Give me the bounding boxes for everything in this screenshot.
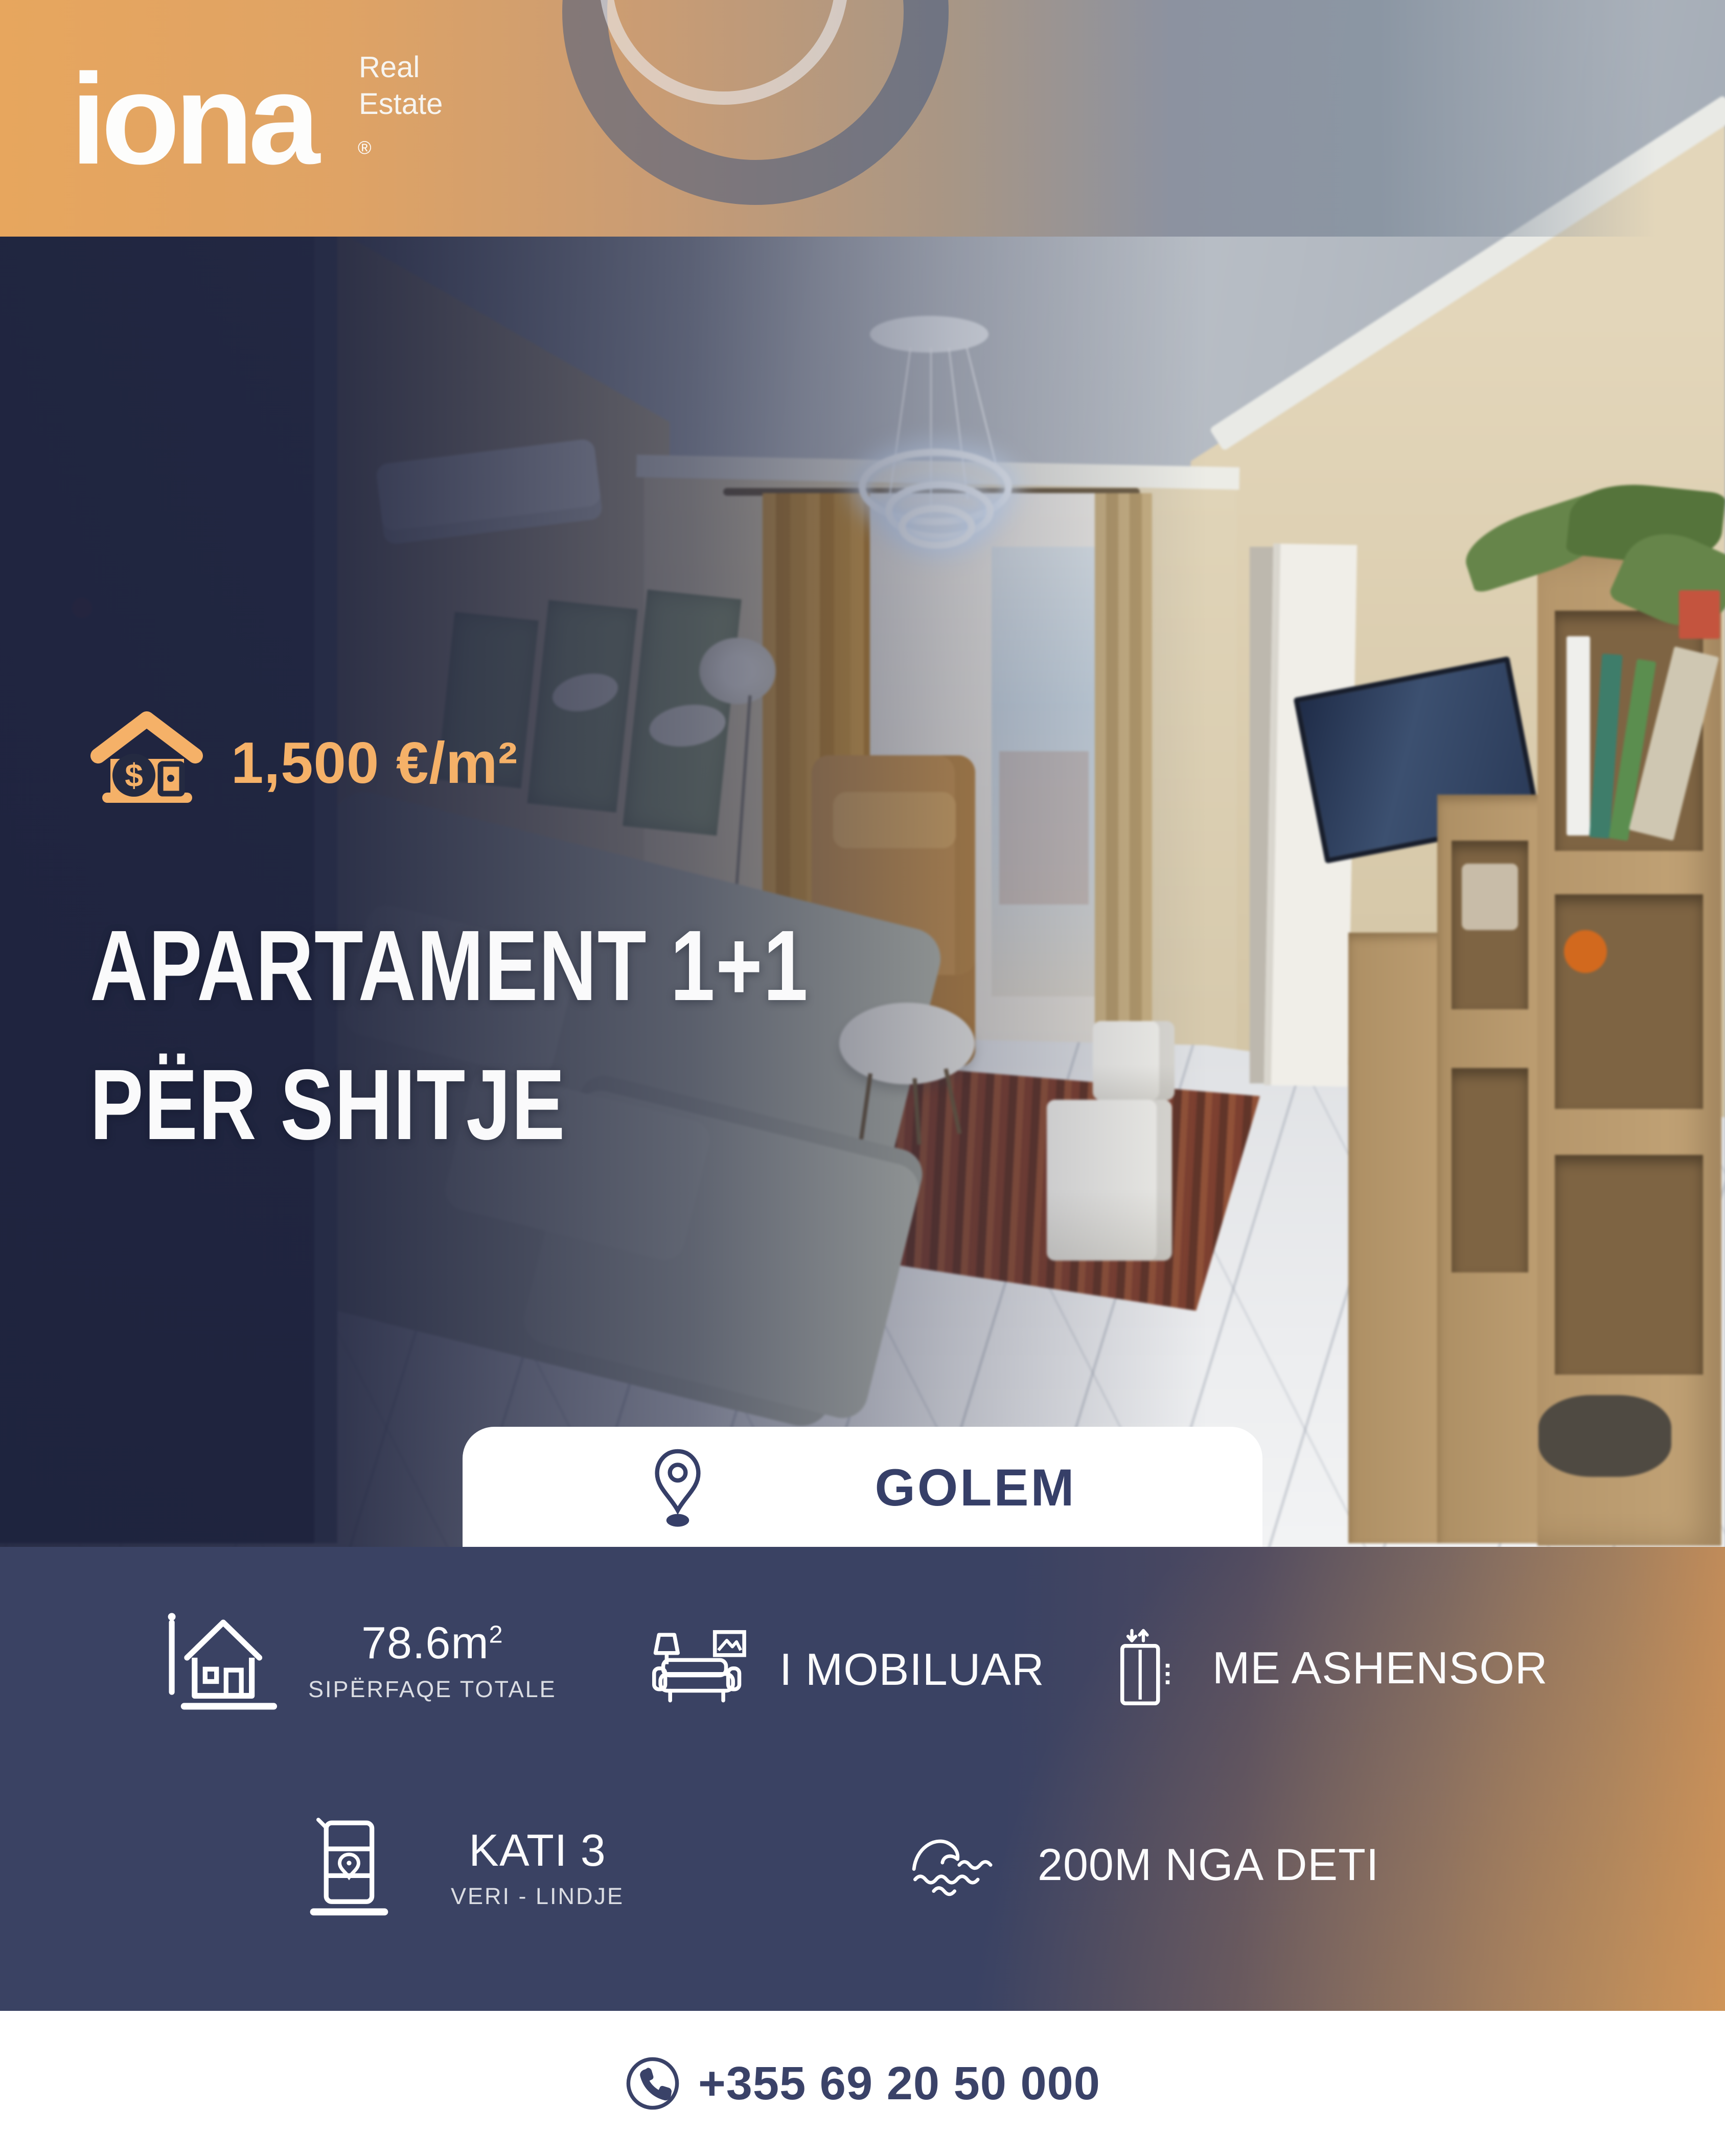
location-pill: GOLEM [463,1427,1262,1548]
feature-floor: KATI 3 VERI - LINDJE [303,1801,624,1934]
feature-sea-distance: 200M NGA DETI [890,1833,1379,1897]
contact-bar: +355 69 20 50 000 [8,2011,1717,2156]
feature-furnished: I MOBILUAR [645,1628,1045,1712]
brand-tagline-line2: Estate [359,86,443,123]
feature-elevator: ME ASHENSOR [1105,1618,1548,1718]
brand-tagline: Real Estate [359,49,443,123]
location-name: GOLEM [875,1458,1076,1518]
furnished-value: I MOBILUAR [779,1645,1045,1695]
brand-tagline-line1: Real [359,49,443,86]
brand-header: iona ® Real Estate [0,0,1725,237]
features-band: 78.6m2 SIPËRFAQE TOTALE I MOBILUAR [0,1547,1725,2011]
floor-value: KATI 3 [469,1826,606,1875]
area-icon [157,1608,285,1713]
location-pin-icon [649,1448,706,1527]
phone-icon [625,2055,681,2112]
building-floor-icon [303,1801,397,1934]
elevator-value: ME ASHENSOR [1212,1643,1548,1693]
listing-title-line1: APARTAMENT 1+1 [90,916,809,1016]
house-price-icon: $ [83,711,211,816]
feature-area: 78.6m2 SIPËRFAQE TOTALE [157,1608,557,1713]
area-label: SIPËRFAQE TOTALE [308,1676,557,1703]
elevator-icon [1105,1618,1182,1718]
price-per-m2: 1,500 €/m² [231,730,518,797]
furniture-icon [645,1628,750,1712]
listing-title-line2: PËR SHITJE [90,1055,566,1155]
floor-label: VERI - LINDJE [451,1883,624,1910]
svg-text:$: $ [125,757,143,794]
listing-flyer: iona ® Real Estate $ 1,500 €/m² APARTAME… [0,0,1725,2156]
area-sup: 2 [489,1621,503,1649]
area-value: 78.6m2 [361,1618,503,1668]
wave-icon [890,1833,1013,1897]
phone-number: +355 69 20 50 000 [698,2057,1100,2111]
registered-mark: ® [358,137,372,158]
brand-logo: iona [71,55,315,184]
price-row: $ 1,500 €/m² [83,709,518,817]
sea-distance-value: 200M NGA DETI [1038,1840,1379,1890]
